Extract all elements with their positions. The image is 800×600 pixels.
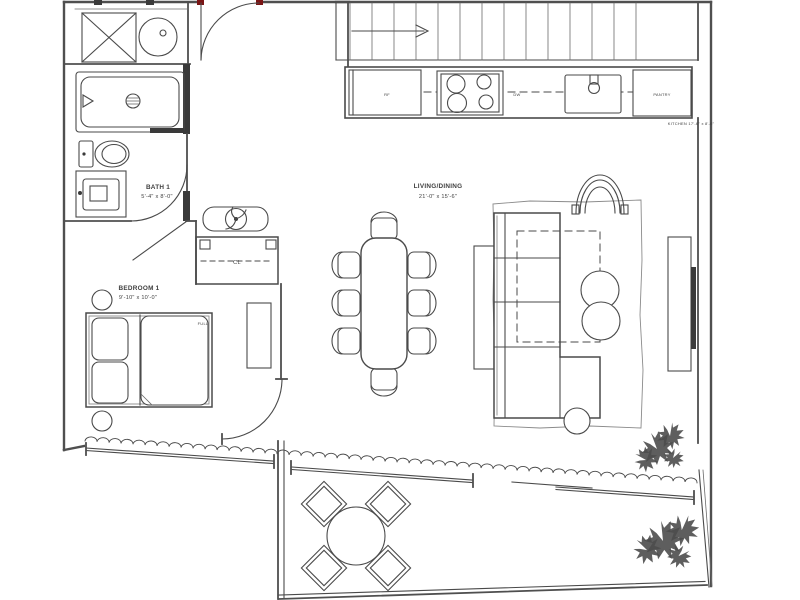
dining-chair: [408, 328, 436, 354]
outdoor-table: [327, 507, 385, 565]
living-label: LIVING/DINING: [414, 183, 463, 190]
closet: CL: [196, 237, 278, 284]
side-table: [564, 408, 590, 434]
accent-chair: [572, 175, 628, 214]
refrigerator-label: RF: [384, 92, 390, 97]
bench-ottoman: [203, 207, 268, 231]
bedroom-dims: 9'-10" x 10'-0": [119, 295, 157, 301]
pillow: [92, 318, 128, 360]
bed: FULL: [86, 313, 212, 407]
bath-door: [131, 165, 187, 260]
bathroom: BATH 1 5'-4" x 8'-0": [76, 72, 187, 260]
dining-chair: [371, 368, 397, 396]
balcony: [278, 417, 712, 599]
dining-set: [332, 212, 436, 396]
dining-chair: [332, 252, 360, 278]
pantry-label: PANTRY: [653, 92, 670, 97]
refrigerator: RF: [349, 70, 421, 115]
x-box-washer-icon: [82, 13, 136, 62]
dining-chair: [408, 252, 436, 278]
entry-door-swing-arc: [201, 3, 259, 60]
dining-table: [361, 238, 407, 369]
kitchen-counter: RF DW PANTRY KITCHEN 17'-6" x 8'-6": [345, 67, 715, 126]
floor-plan-drawing: RF DW PANTRY KITCHEN 17'-6" x 8'-6": [0, 0, 800, 600]
bath-label: BATH 1: [146, 184, 170, 191]
fan-icon: [226, 207, 247, 230]
cooktop: [437, 71, 503, 115]
door-jamb: [94, 0, 102, 5]
arrow-right-icon: [352, 25, 428, 37]
console-table: [474, 246, 494, 369]
closet-label: CL: [233, 260, 241, 266]
dining-chair: [371, 212, 397, 240]
floor-plan-canvas: RF DW PANTRY KITCHEN 17'-6" x 8'-6": [0, 0, 800, 600]
bedroom-door: [222, 379, 287, 444]
dishwasher-label: DW: [513, 92, 520, 97]
toilet: [79, 141, 129, 167]
washer-dryer-closet: [75, 9, 188, 62]
dining-chair: [408, 290, 436, 316]
kitchen-note: KITCHEN 17'-6" x 8'-6": [668, 121, 715, 126]
coffee-tables: [581, 271, 620, 340]
curtain-wavy-line: [85, 437, 697, 483]
dining-chair: [332, 328, 360, 354]
bath-door-swing-arc: [131, 165, 187, 221]
dining-chair: [332, 290, 360, 316]
bath-door-leaf: [133, 221, 187, 260]
pillow: [92, 362, 128, 403]
palm-plant-icon: [623, 496, 710, 582]
stairs: [336, 3, 698, 60]
bathtub: [76, 72, 184, 133]
living-dims: 21'-0" x 15'-6": [419, 194, 457, 200]
media-console: [668, 237, 696, 371]
bath-dims: 5'-4" x 8'-0": [141, 194, 172, 200]
door-jamb: [146, 0, 154, 5]
nightstand: [92, 290, 112, 310]
pantry-cabinet: PANTRY: [633, 70, 691, 116]
shower-glass: [150, 128, 184, 133]
bedroom-label: BEDROOM 1: [119, 285, 160, 292]
nightstand: [92, 411, 112, 431]
outdoor-dining-set: [301, 481, 410, 590]
entry-door: [197, 0, 263, 60]
living-dining: LIVING/DINING 21'-0" x 15'-6": [332, 175, 696, 434]
vanity-sink: [76, 171, 126, 217]
bedroom-door-swing-arc: [222, 379, 282, 439]
palm-plant-icon: [629, 417, 689, 476]
dresser: [247, 303, 271, 368]
bed-size-label: FULL: [198, 321, 209, 326]
circle-dryer-icon: [139, 18, 177, 56]
tv: [691, 267, 696, 349]
kitchen-sink: [565, 75, 621, 113]
bedroom: BEDROOM 1 9'-10" x 10'-0" FULL: [86, 285, 287, 444]
